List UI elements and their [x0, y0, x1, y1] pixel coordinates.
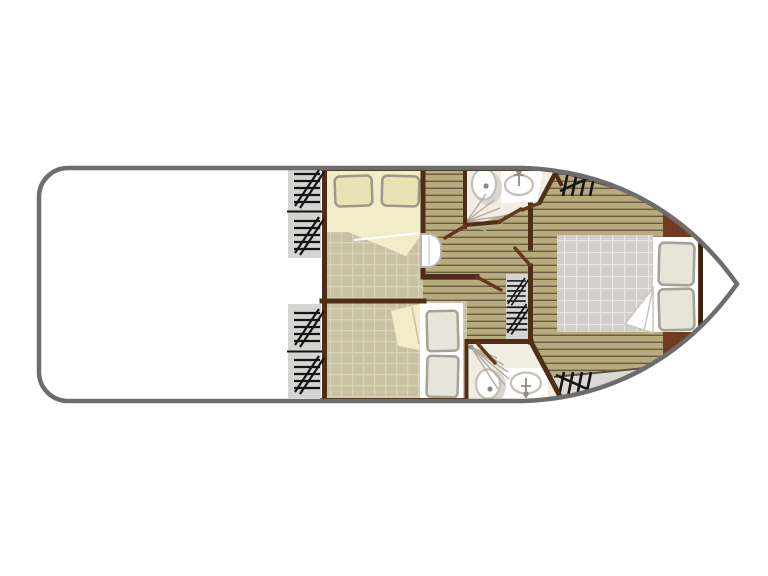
pillow — [658, 243, 694, 286]
cabin-bow-bed — [557, 235, 698, 333]
interior — [287, 160, 748, 408]
cabin-step-unit — [421, 234, 441, 267]
boat-floor-plan — [0, 0, 768, 576]
pillow — [426, 311, 458, 352]
pillow — [658, 289, 694, 331]
pillow — [382, 176, 420, 207]
pillow — [426, 356, 458, 398]
companionway-stairs — [506, 274, 531, 342]
floor-plan-canvas — [0, 0, 768, 576]
headboard-edge — [699, 206, 703, 360]
pillow — [334, 175, 372, 206]
